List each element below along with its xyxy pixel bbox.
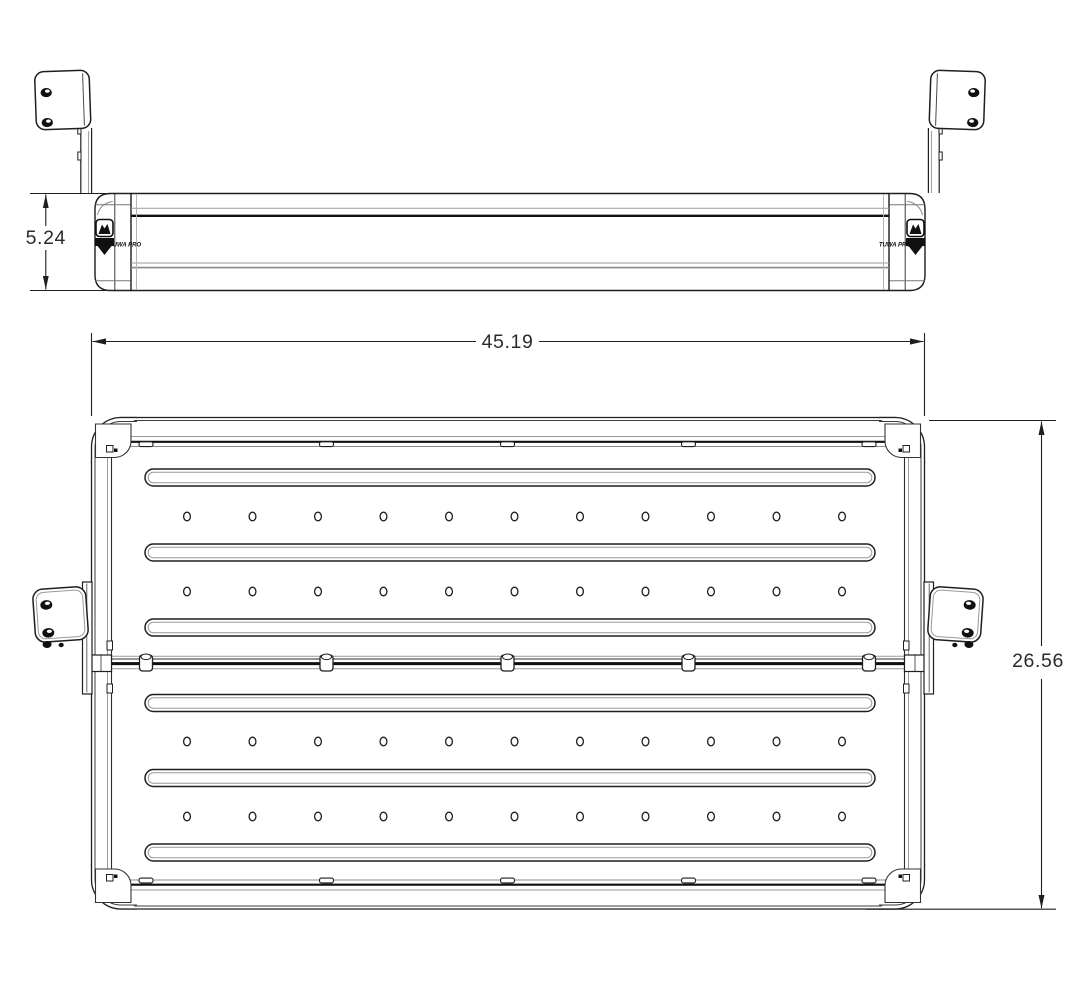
deck-hole <box>511 737 518 746</box>
deck-hole <box>773 512 780 521</box>
corner-piece-bottom-right <box>879 864 925 910</box>
rack-technical-drawing: TUWA PRO TUWA PRO <box>0 0 1080 983</box>
arrow-right-icon <box>910 338 924 344</box>
deck-hole <box>380 737 387 746</box>
deck-hole <box>839 812 846 821</box>
rail-tab-top <box>139 442 153 447</box>
deck-hole <box>249 737 256 746</box>
brand-logo-text: TUWA PRO <box>879 243 911 249</box>
deck-slot <box>145 695 875 712</box>
deck-slot <box>145 844 875 861</box>
deck-hole <box>577 512 584 521</box>
dim-crossbar-height-value: 5.24 <box>26 227 66 249</box>
side-rail-tab <box>107 641 113 650</box>
front-elevation-view: TUWA PRO TUWA PRO <box>35 70 986 290</box>
rail-tab-bottom <box>862 878 876 883</box>
deck-hole <box>708 812 715 821</box>
deck-slot <box>145 770 875 787</box>
deck-hole <box>642 812 649 821</box>
rail-tab-top <box>682 442 696 447</box>
deck-hole <box>184 587 191 596</box>
arrow-down-icon <box>43 276 49 290</box>
dim-overall-width-value: 45.19 <box>482 331 534 353</box>
deck-hole <box>446 512 453 521</box>
deck-hole <box>315 587 322 596</box>
deck-hole <box>380 587 387 596</box>
brand-logo-text: TUWA PRO <box>109 243 141 249</box>
deck-hole <box>773 812 780 821</box>
crossbar <box>95 194 925 291</box>
deck-hole <box>249 587 256 596</box>
deck-hole <box>511 512 518 521</box>
dim-overall-width: 45.19 <box>92 331 925 416</box>
deck-hole <box>642 512 649 521</box>
dim-overall-depth-value: 26.56 <box>1012 650 1064 672</box>
deck-hole <box>577 812 584 821</box>
deck-hole <box>708 587 715 596</box>
arrow-up-icon <box>1039 422 1045 436</box>
side-rail-tab <box>107 684 113 693</box>
deck-hole <box>839 512 846 521</box>
rail-tab-bottom <box>320 878 334 883</box>
deck-center-seam <box>92 654 925 672</box>
deck-hole <box>446 587 453 596</box>
arrow-down-icon <box>1039 895 1045 908</box>
rail-tab-bottom <box>139 878 153 883</box>
rail-tab-top <box>501 442 515 447</box>
rail-tab-bottom <box>682 878 696 883</box>
plan-left-mount-bracket <box>32 582 92 694</box>
deck-hole <box>577 587 584 596</box>
deck-hole <box>184 812 191 821</box>
deck-hole <box>315 812 322 821</box>
deck-hole <box>249 812 256 821</box>
deck-hole <box>380 812 387 821</box>
deck-slot <box>145 619 875 636</box>
deck-hole <box>577 737 584 746</box>
deck-hole <box>773 737 780 746</box>
deck-hole <box>249 512 256 521</box>
front-right-mount-bracket <box>928 70 985 193</box>
deck-hole <box>773 587 780 596</box>
deck-hole <box>708 512 715 521</box>
rail-tab-top <box>862 442 876 447</box>
deck-hole <box>511 812 518 821</box>
plan-right-mount-bracket <box>924 582 984 694</box>
deck-hole <box>642 587 649 596</box>
rail-tab-bottom <box>501 878 515 883</box>
deck-hole <box>184 512 191 521</box>
deck-hole <box>708 737 715 746</box>
front-left-mount-bracket <box>35 70 92 193</box>
deck-hole <box>315 512 322 521</box>
deck-slot <box>145 469 875 486</box>
corner-piece-top-right <box>879 418 925 464</box>
technical-drawing-canvas: TUWA PRO TUWA PRO <box>0 0 1080 983</box>
deck-slot <box>145 544 875 561</box>
seam-clip-cap <box>141 654 151 660</box>
side-rail-tab <box>904 641 910 650</box>
seam-clip-cap <box>864 654 874 660</box>
side-rail-tab <box>904 684 910 693</box>
deck-hole <box>446 737 453 746</box>
deck-hole <box>511 587 518 596</box>
arrow-left-icon <box>93 338 107 344</box>
arrow-up-icon <box>43 195 49 209</box>
seam-clip-cap <box>684 654 694 660</box>
rail-tab-top <box>320 442 334 447</box>
deck-hole <box>839 587 846 596</box>
corner-piece-bottom-left <box>92 864 138 910</box>
deck-hole <box>380 512 387 521</box>
deck-hole <box>315 737 322 746</box>
deck-hole <box>184 737 191 746</box>
deck-hole <box>839 737 846 746</box>
seam-clip-cap <box>322 654 332 660</box>
deck-hole <box>446 812 453 821</box>
corner-piece-top-left <box>92 418 138 464</box>
deck-hole <box>642 737 649 746</box>
seam-clip-cap <box>503 654 513 660</box>
top-plan-view <box>32 418 984 910</box>
